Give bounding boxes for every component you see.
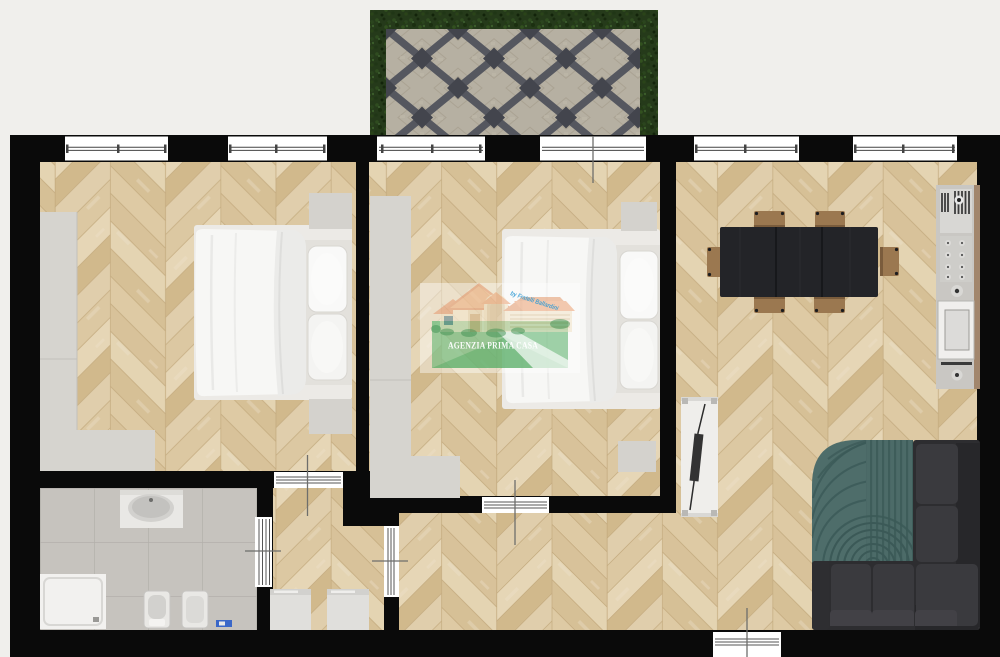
svg-text:AGENZIA PRIMA CASA: AGENZIA PRIMA CASA — [448, 340, 538, 351]
